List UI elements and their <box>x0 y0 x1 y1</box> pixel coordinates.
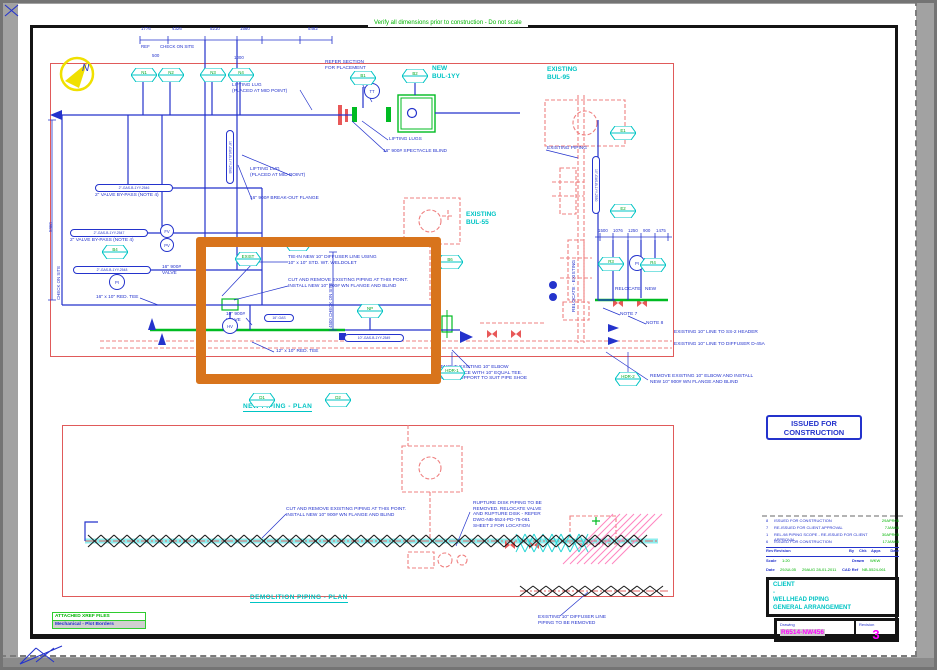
existing-bul95-label: EXISTING BUL-95 <box>547 66 577 81</box>
callout-breakout-flange: 16" 900# BREAK-OUT FLANGE <box>250 196 319 202</box>
rev-date: 30APR05 <box>875 532 899 539</box>
rev-desc: ISSUED FOR CONSTRUCTION <box>774 539 875 546</box>
hdr-appr: Appr. <box>871 548 885 555</box>
drawing-number-box: Drawing R6514-NW456 Revision 3 <box>774 618 899 642</box>
hdr-date: Date <box>885 548 899 555</box>
new-gaskets <box>352 107 391 122</box>
dim-top-5: 5482 <box>308 26 318 31</box>
hdr-rev: Rev <box>766 548 774 555</box>
dim-right-2: 1076 <box>613 228 623 233</box>
callout-lifting-lug-1: LIFTING LUG (PLACED AT MID POINT) <box>232 83 287 94</box>
demolition-hatch-main <box>88 535 647 547</box>
revision-header-row: Rev Revision By Chk Appr. Date <box>766 548 899 555</box>
callout-red-tee-16: 16" x 10" RED. TEE <box>96 295 139 301</box>
rev-date: 17JAN05 <box>875 539 899 546</box>
fold-mark-icon <box>5 5 62 664</box>
rev-desc: RE-ISSUED FOR CLIENT APPROVAL <box>774 525 875 532</box>
existing-bul55-label: EXISTING BUL-55 <box>466 211 496 226</box>
tag-hex: B1 <box>350 71 376 85</box>
rev-num: 8 <box>766 518 774 525</box>
date-row: Date 29JUL05 29AUG 28-01-2011 CAD Ref NB… <box>766 567 899 574</box>
callout-existing-piping: EXISTING PIPING <box>547 146 587 152</box>
line-number-pill: 2"-GAS-B-1YY-2548 <box>73 266 151 274</box>
tag-hex: R3 <box>598 257 624 271</box>
north-compass-icon: N <box>58 55 98 95</box>
tag-hex: D1 <box>249 393 275 407</box>
tag-label: N1 <box>141 70 147 75</box>
xref-file: Mechanical - Plot Borders <box>53 621 145 628</box>
dim-check-on-site-left: CHECK ON SITE <box>56 266 61 300</box>
callout-cut-remove-demo: CUT AND REMOVE EXISTING PIPING AT THIS P… <box>286 507 406 518</box>
tag-label: B4 <box>112 247 118 252</box>
tag-label: HDR-2 <box>621 374 635 379</box>
instrument-bubble: PV <box>160 238 174 252</box>
instrument-bubble: FV <box>160 224 174 238</box>
rev-desc: ISSUED FOR CONSTRUCTION <box>774 518 875 525</box>
revision-row: 6 ISSUED FOR CONSTRUCTION 17JAN05 <box>766 539 899 546</box>
xref-title: ATTACHED XREF FILES <box>53 613 145 621</box>
rev-date: 29APR06 <box>875 518 899 525</box>
tag-hex: N1 <box>131 68 157 82</box>
dim-top-2: 4326 <box>172 26 182 31</box>
tag-label: N2 <box>168 70 174 75</box>
rev-desc: REL-98 PIPING SCOPE - RE-ISSUED FOR CLIE… <box>774 532 875 539</box>
tag-label: E1 <box>620 128 626 133</box>
dim-small-2: 1000 <box>234 55 244 60</box>
tag-label: D2 <box>335 395 341 400</box>
demolition-plan-title: DEMOLITION PIPING - PLAN <box>250 594 348 603</box>
drawing-number: R6514-NW456 <box>780 629 825 636</box>
dim-small-1: 500 <box>152 53 159 58</box>
callout-relocate: RELOCATE <box>615 287 641 293</box>
table-rule <box>766 556 899 557</box>
date-label: Date <box>766 567 780 574</box>
dim-right-3: 1250 <box>628 228 638 233</box>
rev-date: 7JAN06 <box>875 525 899 532</box>
tag-hex: HDR-1 <box>439 366 465 380</box>
callout-lifting-lugs: LIFTING LUGS <box>389 137 422 143</box>
line-number-pill: 2"-GAS-B-1YY-2547 <box>70 229 148 237</box>
drawing-label: Drawing <box>780 622 851 627</box>
tag-hex: D2 <box>325 393 351 407</box>
tag-label: B6 <box>447 257 453 262</box>
callout-valve-bypass-1: 2" VALVE BY-PASS (NOTE 4) <box>95 193 159 199</box>
line-number-pill: 2"-GAS-B-1YY-2546 <box>95 184 173 192</box>
hdr-by: By <box>849 548 859 555</box>
tag-label: R4 <box>650 260 656 265</box>
client-label: CLIENT <box>773 582 892 590</box>
hdr-revision: Revision <box>774 548 849 555</box>
new-bul-label: NEW BUL-1YY <box>432 65 460 80</box>
callout-relocate-existing: RELOCATE - EXISTING <box>572 260 578 312</box>
callout-diffuser-removed: EXISTING 10" DIFFUSER LINE PIPING TO BE … <box>538 615 606 626</box>
callout-spectacle-blind: 16" 900# SPECTACLE BLIND <box>383 149 447 155</box>
client-title-box: CLIENT - WELLHEAD PIPING GENERAL ARRANGE… <box>766 577 899 617</box>
tag-hex: R4 <box>640 258 666 272</box>
tag-label: E2 <box>620 206 626 211</box>
compass-letter: N <box>82 63 90 74</box>
date-value: 29JUL05 <box>780 567 802 574</box>
tag-label: B1 <box>360 73 366 78</box>
drawing-title-1: WELLHEAD PIPING <box>773 597 892 605</box>
highlight-rectangle <box>196 237 441 384</box>
xref-box: ATTACHED XREF FILES Mechanical - Plot Bo… <box>52 612 146 629</box>
tag-hex: E1 <box>610 126 636 140</box>
date2-value: 29AUG 28-01-2011 <box>802 567 842 574</box>
revision-row: 8 ISSUED FOR CONSTRUCTION 29APR06 <box>766 518 899 525</box>
callout-lifting-lug-2: LIFTING LUG (PLACED AT MID POINT) <box>250 167 305 178</box>
callout-existing-ss2: EXISTING 10" LINE TO SS-2 HEADER <box>674 330 758 336</box>
dim-top-4: 1560 <box>240 26 250 31</box>
tag-hex: B4 <box>102 245 128 259</box>
callout-remove-elbow-right: REMOVE EXISTING 10" ELBOW AND INSTALL NE… <box>650 374 753 385</box>
tag-hex: N4 <box>228 68 254 82</box>
callout-note8: NOTE 8 <box>646 321 663 327</box>
rev-num: 6 <box>766 539 774 546</box>
callout-existing-diffuser: EXISTING 10" LINE TO DIFFUSER D-45A <box>674 342 765 348</box>
dim-top-1: 1776 <box>141 26 151 31</box>
line-number-pill: 10"-GAS-B-1YY-2550 <box>592 156 600 214</box>
cad-drawing-viewer: { "page": { "top_note": "Verify all dime… <box>0 0 937 670</box>
scale-value: 1:20 <box>782 558 812 565</box>
callout-note7: NOTE 7 <box>620 312 637 318</box>
dim-right-1: 1500 <box>598 228 608 233</box>
tag-label: N4 <box>238 70 244 75</box>
issued-for-construction-stamp: ISSUED FOR CONSTRUCTION <box>766 415 862 440</box>
revision-row: 1 REL-98 PIPING SCOPE - RE-ISSUED FOR CL… <box>766 532 899 539</box>
revision-number: 3 <box>859 627 893 642</box>
client-value: - <box>773 590 892 598</box>
drawing-title-2: GENERAL ARRANGEMENT <box>773 605 892 613</box>
callout-refer-section: REFER SECTION FOR PLACEMENT <box>325 60 366 71</box>
tag-label: B2 <box>412 71 418 76</box>
dim-right-5: 1475 <box>656 228 666 233</box>
tag-label: HDR-1 <box>445 368 459 373</box>
cad-ref-label: CAD Ref <box>842 567 862 574</box>
dim-check-on-site-top: CHECK ON SITE <box>160 44 194 49</box>
tag-label: R3 <box>608 259 614 264</box>
instrument-bubble: TT <box>364 83 380 99</box>
tag-label: N3 <box>210 70 216 75</box>
tag-hex: HDR-2 <box>615 372 641 386</box>
tag-hex: E2 <box>610 204 636 218</box>
callout-valve-16: 16" 900# VALVE <box>162 265 181 276</box>
drawn-label: Drawn <box>852 558 870 565</box>
dim-top-3: 5210 <box>210 26 220 31</box>
revision-row: 7 RE-ISSUED FOR CLIENT APPROVAL 7JAN06 <box>766 525 899 532</box>
callout-new: NEW <box>645 287 656 293</box>
rev-num: 7 <box>766 525 774 532</box>
verify-dimensions-note: Verify all dimensions prior to construct… <box>368 20 528 27</box>
tag-label: D1 <box>259 395 265 400</box>
cad-ref-value: NB-5524-061 <box>862 567 886 574</box>
dim-ref: REF <box>141 44 150 49</box>
callout-valve-bypass-2: 2" VALVE BY-PASS (NOTE 4) <box>70 238 134 244</box>
tag-hex: N3 <box>200 68 226 82</box>
tag-hex: B2 <box>402 69 428 83</box>
tag-hex: N2 <box>158 68 184 82</box>
title-block: 8 ISSUED FOR CONSTRUCTION 29APR06 7 RE-I… <box>764 516 903 642</box>
rev-num: 1 <box>766 532 774 539</box>
dim-right-4: 900 <box>643 228 650 233</box>
dim-left-vert: 5960 <box>48 222 53 232</box>
drawn-value: WKW <box>870 558 880 565</box>
callout-rupture-disk: RUPTURE DISK PIPING TO BE REMOVED. RELOC… <box>473 501 542 529</box>
instrument-bubble: PI <box>109 274 125 290</box>
scale-row: Scale 1:20 Drawn WKW <box>766 558 899 565</box>
scale-label: Scale <box>766 558 782 565</box>
hdr-chk: Chk <box>859 548 871 555</box>
line-number-pill: 16"-GAS-B-1YY-2545 <box>226 130 234 184</box>
